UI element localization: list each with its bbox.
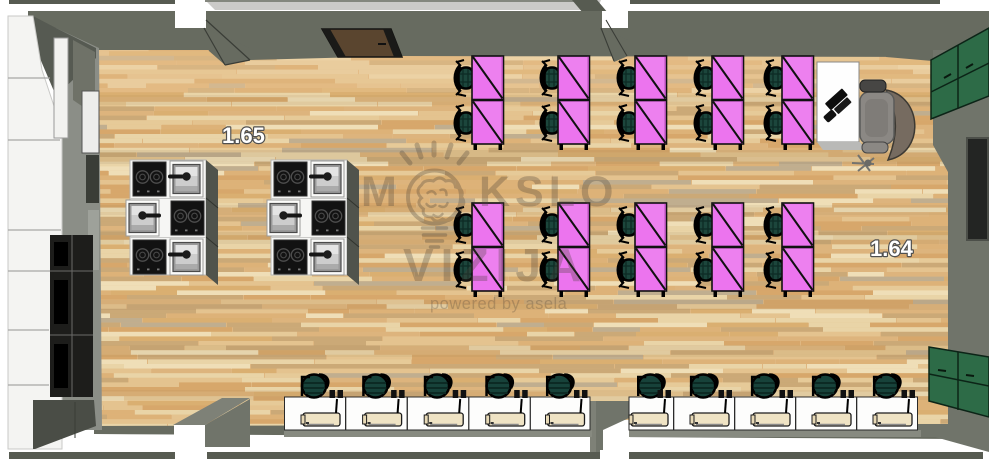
svg-text:1.64: 1.64: [870, 236, 914, 261]
svg-text:powered by asela: powered by asela: [430, 295, 568, 313]
svg-text:KSLO: KSLO: [479, 168, 618, 216]
svg-text:VIZIJA: VIZIJA: [403, 239, 588, 291]
svg-text:M: M: [361, 168, 397, 216]
svg-text:1.65: 1.65: [222, 123, 265, 148]
